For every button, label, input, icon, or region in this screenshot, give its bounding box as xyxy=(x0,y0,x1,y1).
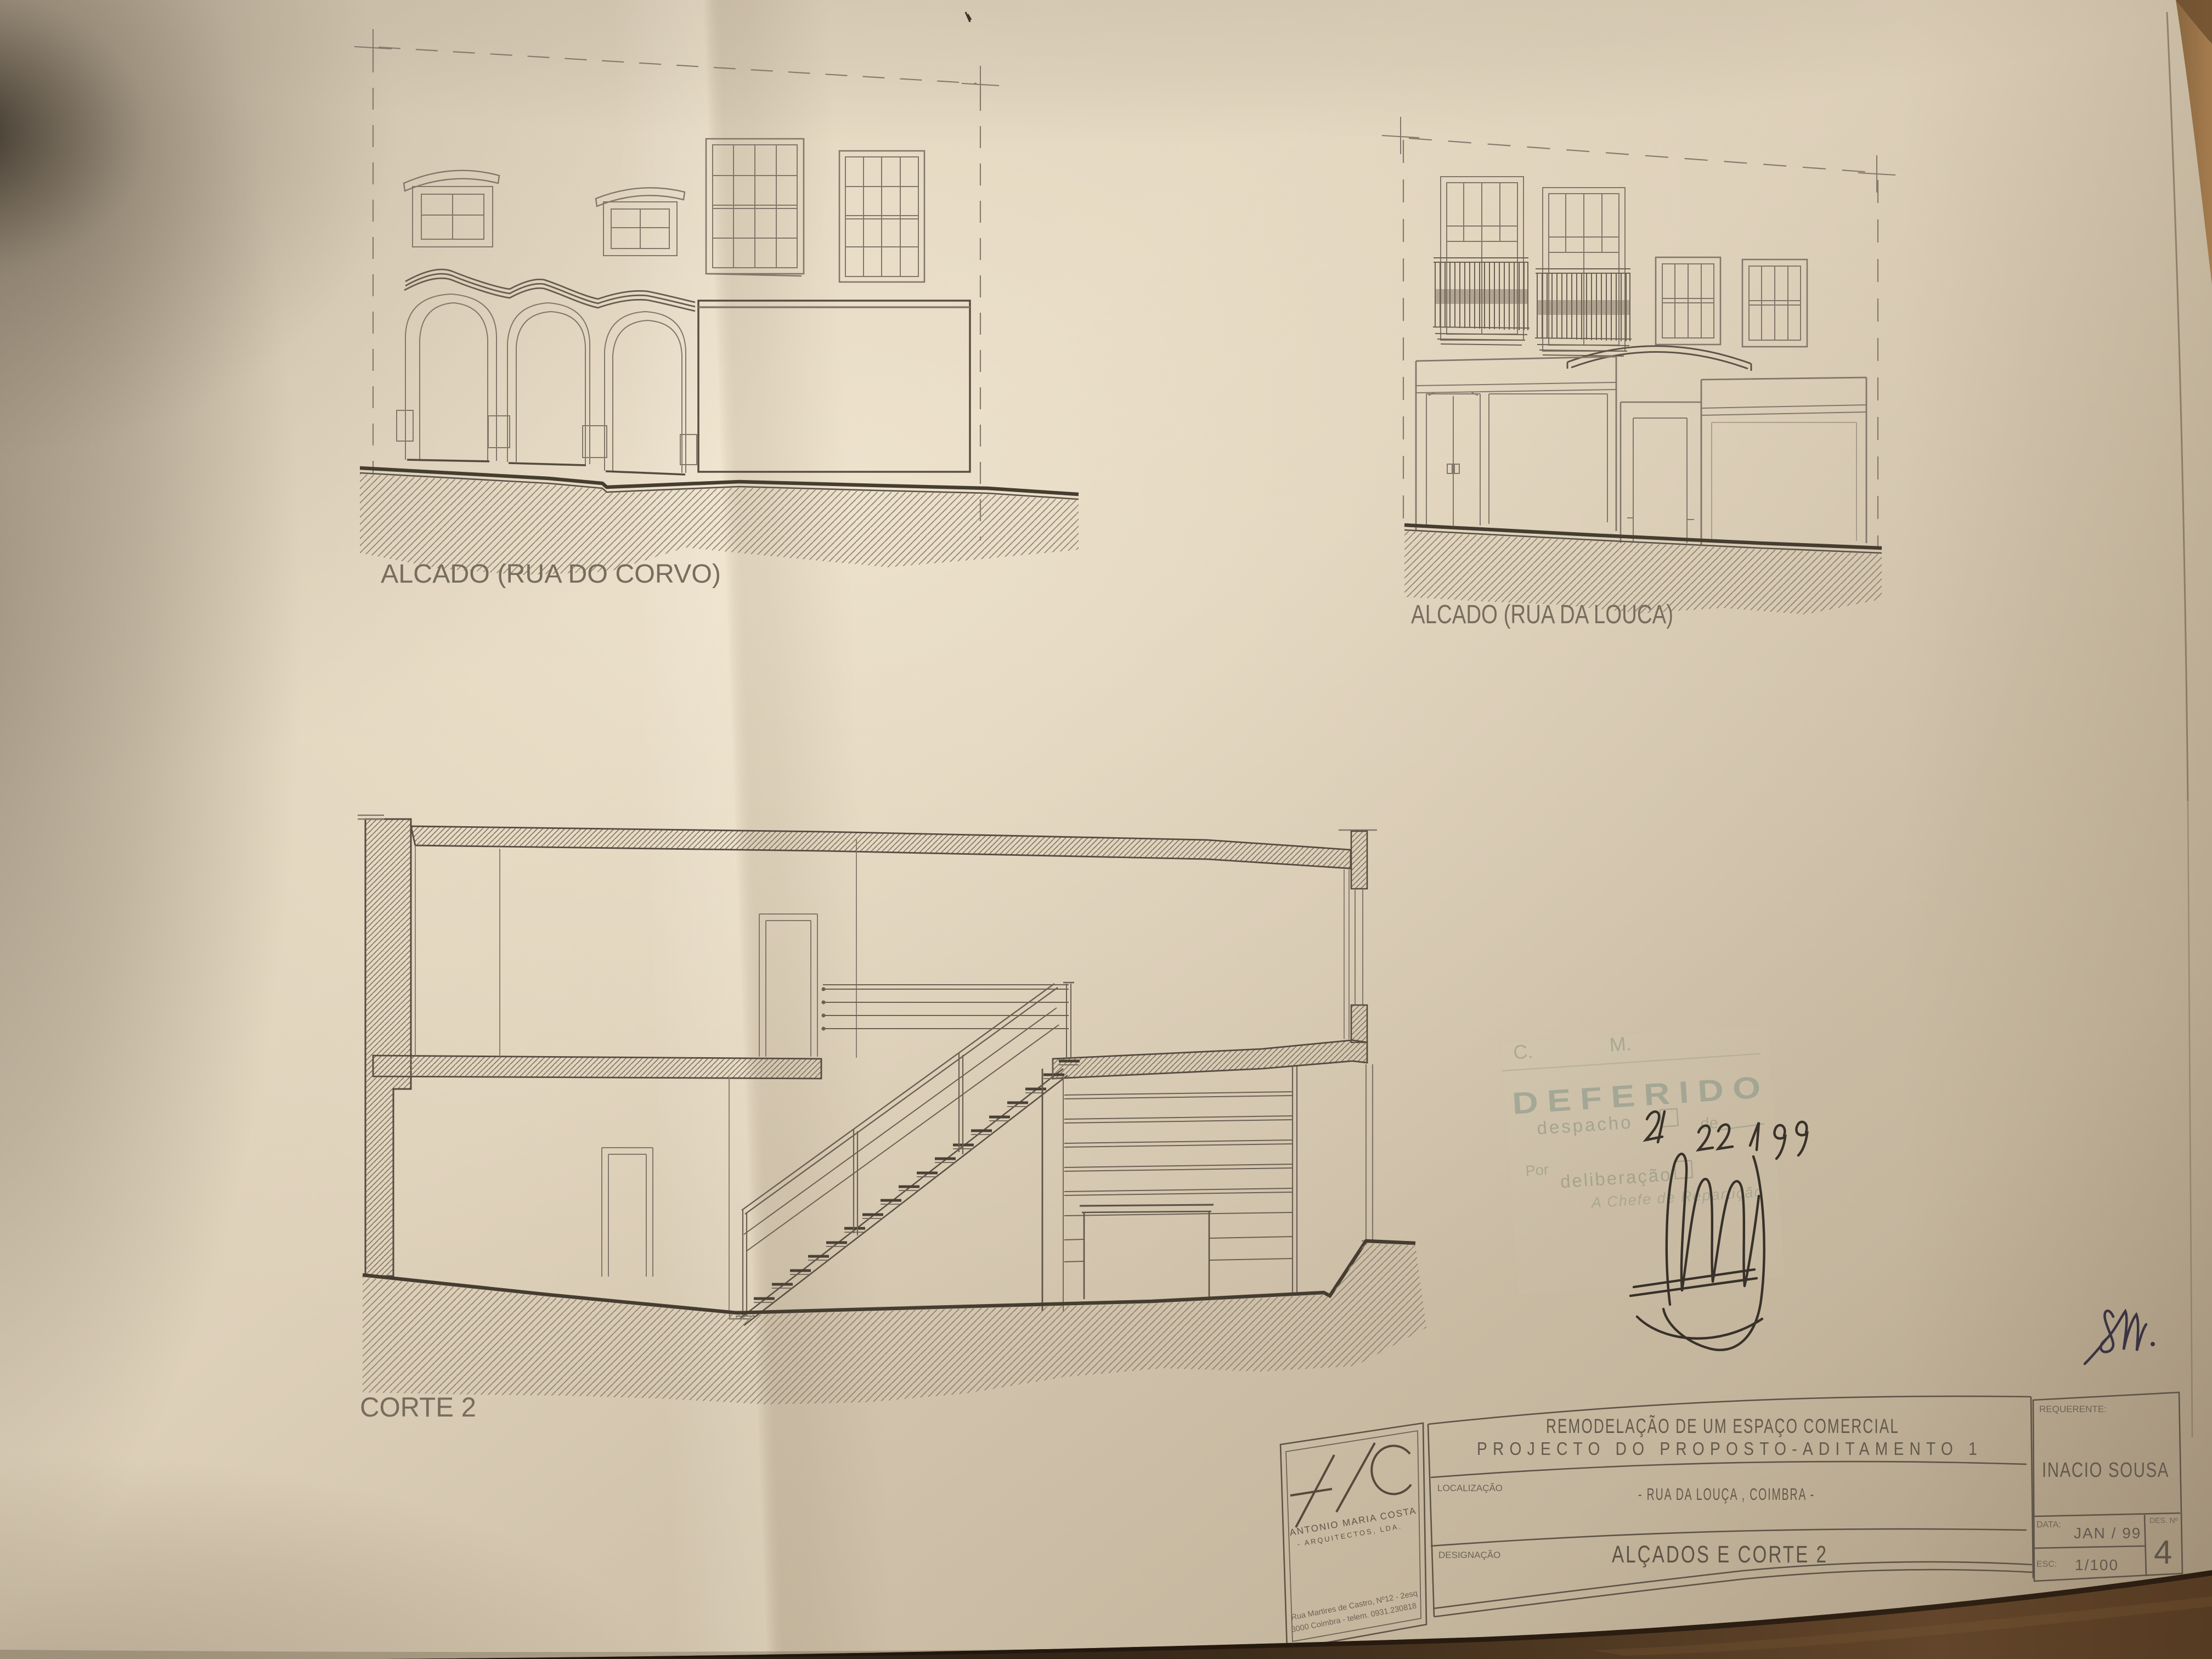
svg-text:- RUA DA LOUÇA , COIMBRA -: - RUA DA LOUÇA , COIMBRA - xyxy=(1638,1485,1815,1504)
svg-text:CORTE 2: CORTE 2 xyxy=(360,1392,476,1423)
svg-text:4: 4 xyxy=(2154,1534,2172,1571)
svg-text:ALÇADOS E CORTE 2: ALÇADOS E CORTE 2 xyxy=(1612,1541,1828,1568)
svg-text:JAN / 99: JAN / 99 xyxy=(2074,1525,2141,1542)
svg-text:INACIO SOUSA: INACIO SOUSA xyxy=(2042,1459,2169,1482)
svg-text:DES. Nº: DES. Nº xyxy=(2149,1516,2178,1525)
svg-text:REMODELAÇÃO DE UM ESPAÇO COMER: REMODELAÇÃO DE UM ESPAÇO COMERCIAL xyxy=(1546,1415,1899,1437)
svg-text:REQUERENTE:: REQUERENTE: xyxy=(2039,1404,2107,1414)
svg-text:PROJECTO DO PROPOSTO-ADITAMENT: PROJECTO DO PROPOSTO-ADITAMENTO 1 xyxy=(1477,1438,1983,1459)
svg-text:1/100: 1/100 xyxy=(2075,1556,2119,1573)
svg-text:DATA:: DATA: xyxy=(2036,1520,2061,1530)
svg-text:ALCADO (RUA DA LOUCA): ALCADO (RUA DA LOUCA) xyxy=(1411,600,1673,629)
svg-text:Por: Por xyxy=(1525,1161,1549,1180)
svg-text:DESIGNAÇÃO: DESIGNAÇÃO xyxy=(1438,1550,1500,1560)
svg-text:M.: M. xyxy=(1609,1032,1632,1056)
svg-text:ALCADO (RUA DO CORVO): ALCADO (RUA DO CORVO) xyxy=(381,560,721,589)
svg-text:ESC:: ESC: xyxy=(2036,1560,2057,1569)
svg-text:C.: C. xyxy=(1513,1040,1534,1063)
svg-text:LOCALIZAÇÃO: LOCALIZAÇÃO xyxy=(1437,1483,1503,1493)
